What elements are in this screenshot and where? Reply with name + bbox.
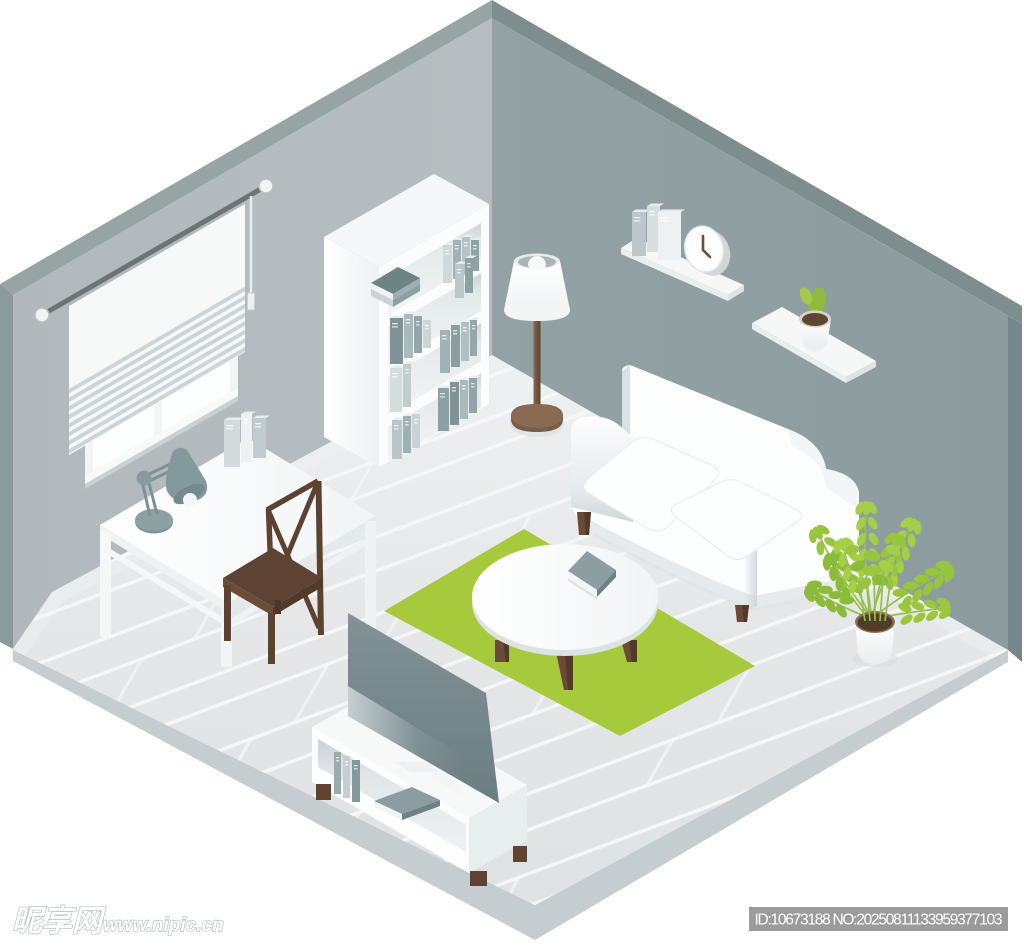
svg-text:昵享网: 昵享网 bbox=[12, 905, 106, 938]
svg-text:www.nipic.cn: www.nipic.cn bbox=[103, 915, 224, 936]
svg-text:ID:10673188 NO:202508111339593: ID:10673188 NO:20250811133959377103 bbox=[755, 912, 1003, 929]
